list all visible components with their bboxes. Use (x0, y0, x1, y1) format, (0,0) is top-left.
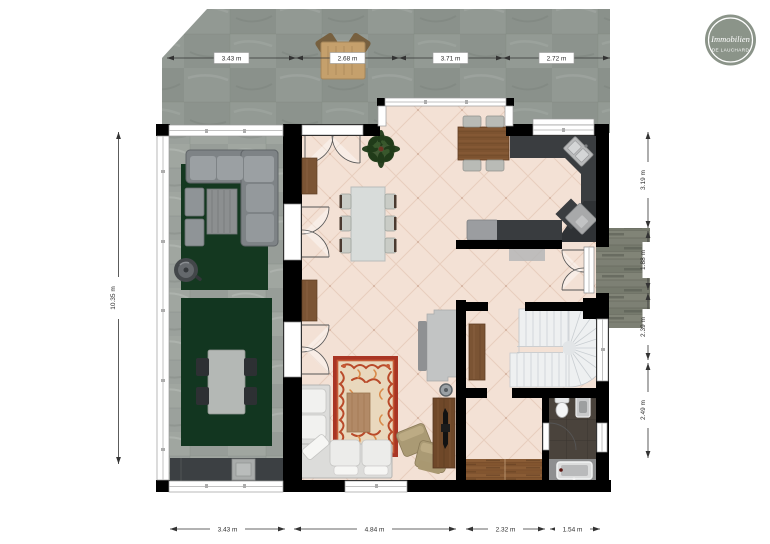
svg-text:4.84 m: 4.84 m (365, 527, 385, 534)
svg-text:2.68 m: 2.68 m (338, 56, 358, 63)
svg-text:Immobilien: Immobilien (710, 34, 750, 44)
svg-text:2.49 m: 2.49 m (640, 400, 647, 420)
svg-text:2.39 m: 2.39 m (640, 317, 647, 337)
svg-text:10.35 m: 10.35 m (110, 286, 117, 310)
svg-text:3.43 m: 3.43 m (222, 56, 242, 63)
svg-text:1.88 m: 1.88 m (640, 250, 647, 270)
svg-text:2.72 m: 2.72 m (547, 56, 567, 63)
svg-text:3.71 m: 3.71 m (441, 56, 461, 63)
svg-text:3.19 m: 3.19 m (640, 170, 647, 190)
svg-text:2.32 m: 2.32 m (496, 527, 516, 534)
svg-text:3.43 m: 3.43 m (218, 527, 238, 534)
svg-text:1.54 m: 1.54 m (563, 527, 583, 534)
svg-text:DE LAUCHARD: DE LAUCHARD (712, 48, 750, 53)
